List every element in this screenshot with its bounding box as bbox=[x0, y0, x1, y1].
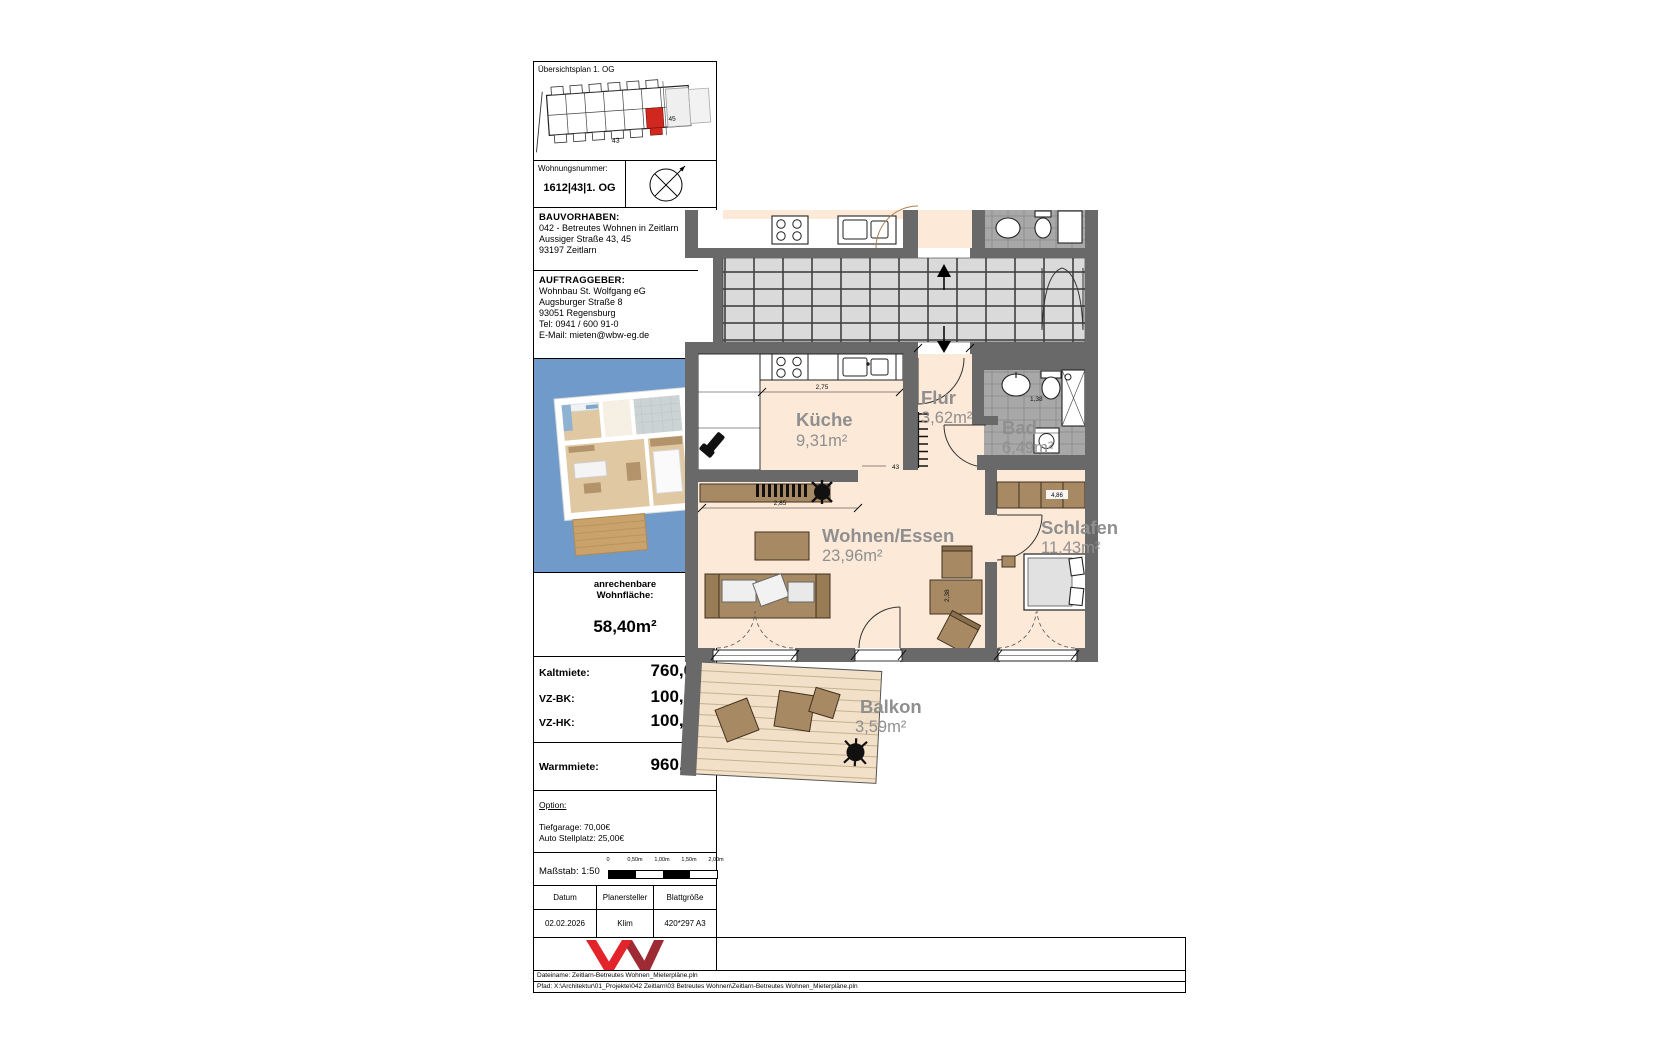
scale-tick: 0 bbox=[606, 857, 609, 863]
meta-value-datum: 02.02.2026 bbox=[534, 910, 597, 937]
corridor bbox=[698, 258, 1085, 342]
dim-bad: 1,38 bbox=[1030, 396, 1043, 403]
scalebar bbox=[608, 870, 718, 879]
shower-icon bbox=[1062, 370, 1085, 426]
scale-tick: 2,00m bbox=[708, 857, 723, 863]
room-label-bad: Bad bbox=[1002, 417, 1037, 438]
option-heading: Option: bbox=[539, 800, 566, 810]
option-line: Auto Stellplatz: 25,00€ bbox=[539, 833, 624, 844]
dim-passage: 43 bbox=[892, 464, 900, 471]
rent-label: VZ-HK: bbox=[539, 717, 575, 729]
logo-box bbox=[533, 937, 717, 971]
room-area-flur: 3,62m² bbox=[921, 409, 973, 427]
nightstand bbox=[1002, 556, 1015, 567]
desk bbox=[930, 580, 982, 614]
dim-living-h: 2,38 bbox=[944, 589, 951, 602]
meta-value-planersteller: Klim bbox=[597, 910, 654, 937]
meta-header-blattgroesse: Blattgröße bbox=[654, 886, 716, 910]
option-line: Tiefgarage: 70,00€ bbox=[539, 822, 624, 833]
scale-label: Maßstab: 1:50 bbox=[539, 866, 600, 877]
unit-number: 1612|43|1. OG bbox=[534, 182, 625, 194]
unit-label: Wohnungsnummer: bbox=[534, 161, 625, 176]
room-area-wohnen: 23,96m² bbox=[822, 547, 883, 565]
stamp-box bbox=[716, 937, 1186, 971]
overview-box: Übersichtsplan 1. OG bbox=[533, 61, 717, 161]
dim-kitchen: 2,75 bbox=[816, 384, 829, 391]
balcony bbox=[680, 655, 882, 785]
highlighted-unit bbox=[646, 107, 665, 135]
neighbour-toilet-icon bbox=[1035, 218, 1051, 238]
scale-tick: 0,50m bbox=[627, 857, 642, 863]
dim-wardrobe: 4,86 bbox=[1051, 493, 1063, 499]
wardrobe: 4,86 bbox=[997, 482, 1085, 508]
footer-path: Pfad: X:\Architektur\01_Projekte\042 Zei… bbox=[533, 981, 1186, 993]
coffee-table bbox=[755, 532, 809, 560]
meta-header-datum: Datum bbox=[534, 886, 597, 910]
plant-icon bbox=[812, 480, 832, 504]
overview-label-43: 43 bbox=[612, 137, 620, 145]
floorplan: 2,75 1,38 bbox=[680, 205, 1120, 795]
room-area-bad: 6,49m² bbox=[1002, 439, 1054, 457]
room-label-kueche: Küche bbox=[796, 409, 853, 430]
meta-value-blattgroesse: 420*297 A3 bbox=[654, 910, 716, 937]
toilet-icon bbox=[1041, 371, 1061, 399]
unit-box: Wohnungsnummer: 1612|43|1. OG bbox=[533, 160, 717, 208]
overview-label-45: 45 bbox=[668, 115, 676, 123]
rent-label: VZ-BK: bbox=[539, 693, 575, 705]
room-label-schlafen: Schlafen bbox=[1041, 517, 1118, 538]
meta-header-planersteller: Planersteller bbox=[597, 886, 654, 910]
scale-tick: 1,50m bbox=[681, 857, 696, 863]
warm-rent-label: Warmmiete: bbox=[539, 761, 599, 773]
neighbour-basin-icon bbox=[996, 218, 1020, 238]
meta-table: Datum Planersteller Blattgröße 02.02.202… bbox=[533, 885, 717, 938]
overview-miniplan: 43 45 bbox=[534, 74, 716, 156]
sofa bbox=[705, 574, 830, 618]
room-label-balkon: Balkon bbox=[860, 696, 922, 717]
scale-tick: 1,00m bbox=[654, 857, 669, 863]
wohnbau-logo-icon bbox=[586, 940, 664, 970]
room-area-schlafen: 11,43m² bbox=[1041, 539, 1101, 557]
room-label-flur: Flur bbox=[921, 387, 956, 408]
unit-cell: Wohnungsnummer: 1612|43|1. OG bbox=[534, 161, 626, 207]
room-area-balkon: 3,59m² bbox=[855, 718, 907, 736]
chair bbox=[942, 551, 972, 578]
rent-label: Kaltmiete: bbox=[539, 667, 590, 679]
plan-sheet: Übersichtsplan 1. OG bbox=[0, 0, 1655, 1051]
sideboard bbox=[700, 480, 832, 504]
option-box: Option: Tiefgarage: 70,00€ Auto Stellpla… bbox=[533, 790, 717, 853]
room-area-kueche: 9,31m² bbox=[796, 432, 848, 450]
neighbour-stove-icon bbox=[772, 216, 808, 244]
compass-icon bbox=[628, 161, 716, 207]
scale-box: Maßstab: 1:50 0 0,50m 1,00m 1,50m 2,00m bbox=[533, 852, 717, 886]
dim-living: 2,85 bbox=[774, 500, 787, 507]
room-label-wohnen: Wohnen/Essen bbox=[822, 525, 954, 546]
scalebar-ticks: 0 0,50m 1,00m 1,50m 2,00m bbox=[534, 857, 716, 865]
